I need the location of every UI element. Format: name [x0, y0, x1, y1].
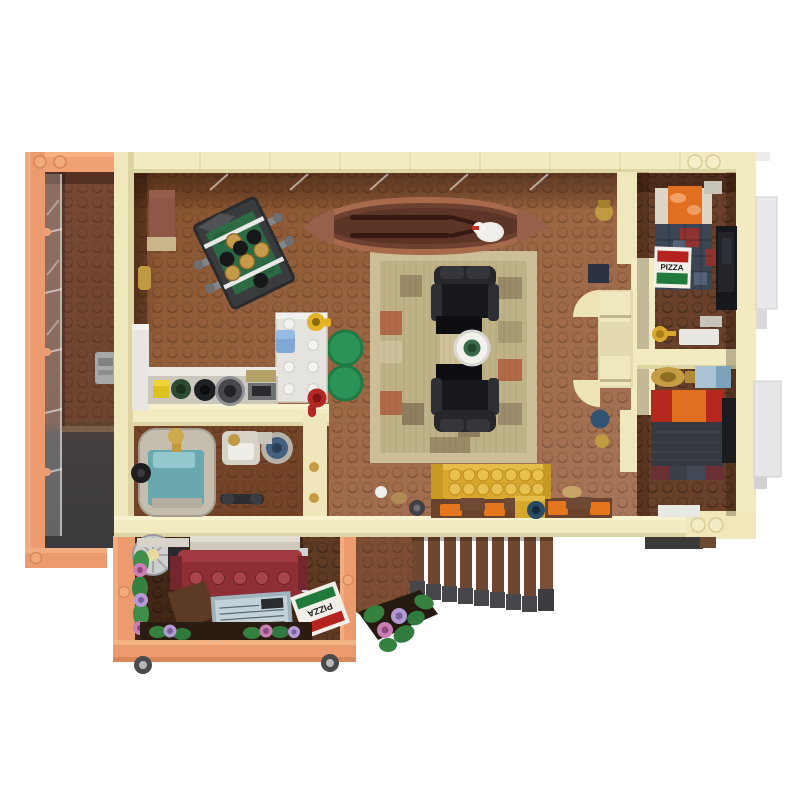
- svg-text:PIZZA: PIZZA: [660, 263, 684, 273]
